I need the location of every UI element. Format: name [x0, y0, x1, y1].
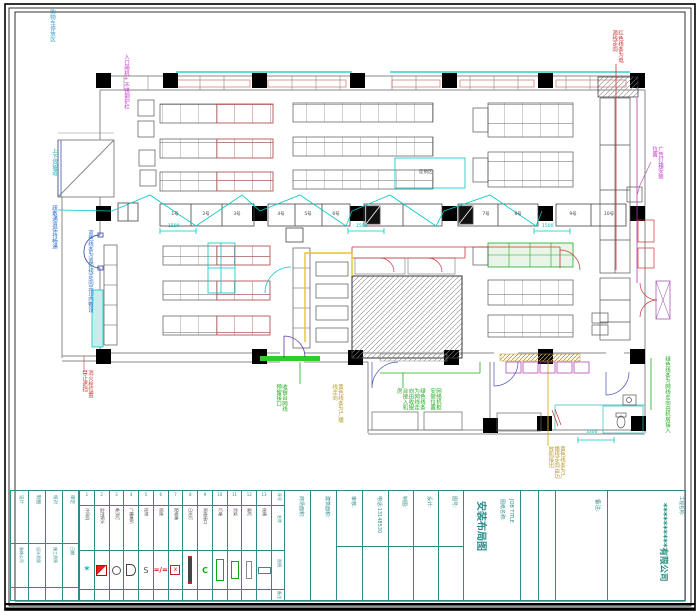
legend-item: 1 冷风机 * [79, 491, 94, 600]
legend-item: 4 广播喇叭 [123, 491, 138, 600]
register-label: 3号 [226, 211, 248, 217]
legend-row-labels: 序号 名称 图例 备注 [271, 491, 284, 600]
lightbox-icon [216, 559, 224, 581]
remark-section: 备注: [555, 491, 607, 600]
register-label: 5号 [297, 211, 319, 217]
project-name-label: 工程名称: [678, 496, 684, 516]
title-block: 设计 制图 校对 审定 装饰公司 设计资质 施工资质 日期 1 冷风机 * 2 … [10, 490, 686, 601]
field-label: 制图: [401, 496, 408, 508]
legend-item: 10 灯箱 [212, 491, 227, 600]
legend-item: 5 挂钩 S [138, 491, 153, 600]
lan-port-icon: C [202, 566, 208, 575]
legend-strip: 1 冷风机 * 2 监控探头 3 吸顶灯 4 广播喇叭 5 挂钩 S 6 插座 … [79, 491, 271, 600]
field-label: 审核: [350, 496, 357, 508]
sig-col-label: 审定 [69, 495, 75, 504]
sig-col-label: 校对 [52, 495, 58, 504]
dim-1500-a: 1500 [168, 224, 179, 229]
fields-table: 商场面积: 建筑面积: 审核: 电话:13148530 制图: 设计: 图号: [284, 491, 463, 600]
job-title-label-cn: 图纸名称: [499, 499, 506, 521]
showcase-icon [246, 561, 252, 579]
power-box-icon: x [170, 565, 180, 575]
sig-col-label: 设计 [18, 495, 24, 504]
legend-item: 2 监控探头 [94, 491, 109, 600]
register-label: 7号 [475, 211, 497, 217]
sig-col-label: 制图 [35, 495, 41, 504]
hook-icon: S [143, 566, 148, 575]
field-label: 商场面积: [298, 496, 305, 518]
register-label: 6号 [325, 211, 347, 217]
sig-col-note: 装饰公司 [18, 547, 24, 563]
register-label: 1号 [164, 211, 186, 217]
storefront-glazing [176, 72, 630, 87]
legend-item: 13 线槽 [256, 491, 271, 600]
field-label: 建筑面积: [324, 496, 331, 518]
register-label: 9号 [562, 211, 584, 217]
signature-table: 设计 制图 校对 审定 装饰公司 设计资质 施工资质 日期 [11, 491, 79, 600]
legend-item: 12 展柜 [241, 491, 256, 600]
sig-col-note: 设计资质 [35, 547, 41, 563]
tube-light-icon [188, 556, 192, 584]
job-title-section: 安装布局图 图纸名称: JOB TITLE [463, 491, 555, 600]
legend-item: 11 货架 [227, 491, 242, 600]
legend-item: 3 吸顶灯 [109, 491, 124, 600]
dim-1500-b: 1500 [356, 224, 367, 229]
register-label: 8号 [507, 211, 529, 217]
drawing-title: 安装布局图 [475, 501, 490, 551]
legend-item: 6 插座 =/= [153, 491, 168, 600]
ceiling-lamp-icon [112, 566, 121, 575]
legend-item: 7 配电箱 x [168, 491, 183, 600]
speaker-icon [126, 564, 136, 576]
job-title-label-en: JOB TITLE [508, 499, 514, 523]
dim-1500-c: 1500 [542, 224, 553, 229]
cable-tray-icon [258, 567, 271, 574]
legend-item: 9 网络接口 C [197, 491, 212, 600]
legend-item: 8 日光灯 [182, 491, 197, 600]
register-label: 10号 [598, 211, 620, 217]
company-name: **********有限公司 [658, 503, 670, 581]
remark-label: 备注: [594, 499, 602, 512]
sig-col-note: 施工资质 [52, 547, 58, 563]
entrance-door [84, 233, 103, 270]
right-counters [598, 64, 670, 340]
register-label: 2号 [195, 211, 217, 217]
sig-col-note: 日期 [69, 547, 75, 555]
field-label: 图号: [451, 496, 458, 508]
cold-fan-icon: * [84, 565, 89, 576]
cad-sheet: 购物车停放区 入口闸机+不锈钢护栏 上下货坡道 疏散通道保持畅通 蓝色线条为监控… [0, 0, 700, 616]
field-label: 设计: [426, 496, 433, 508]
register-label: 4号 [270, 211, 292, 217]
camera-icon [96, 565, 107, 576]
socket-icon: =/= [154, 566, 168, 574]
shelf-icon [231, 561, 239, 579]
promo-box-label: 促销区 [419, 169, 433, 175]
dim-3300: 3300 [586, 430, 597, 435]
field-label: 电话:13148530 [376, 496, 383, 533]
company-section: 工程名称: **********有限公司 [607, 491, 687, 600]
